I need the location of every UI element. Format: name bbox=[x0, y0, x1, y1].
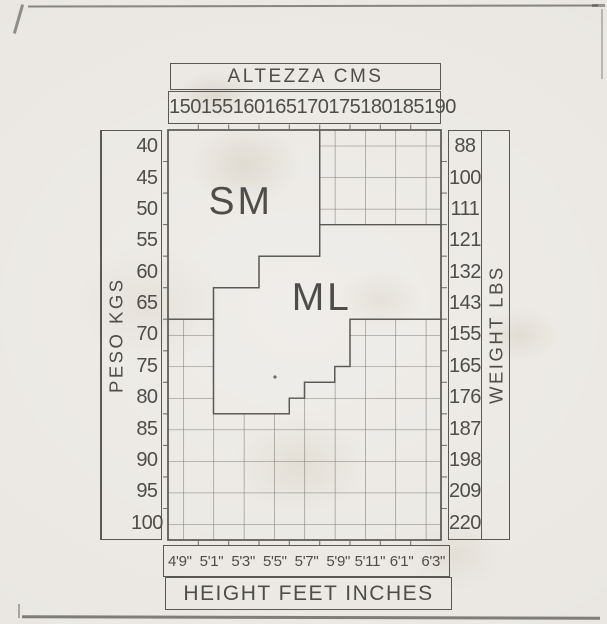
blank-hatched-zone bbox=[320, 130, 441, 225]
size-grid-svg: SMML bbox=[0, 0, 607, 624]
size-region-label-sm: SM bbox=[209, 180, 274, 223]
size-region-label-ml: ML bbox=[292, 276, 352, 319]
size-chart-photo: ALTEZZA CMS 150155160165170175180185190 … bbox=[0, 0, 607, 624]
ink-speck bbox=[273, 375, 276, 378]
blank-hatched-zone bbox=[168, 319, 441, 540]
size-grid-chart: SMML bbox=[0, 0, 607, 624]
